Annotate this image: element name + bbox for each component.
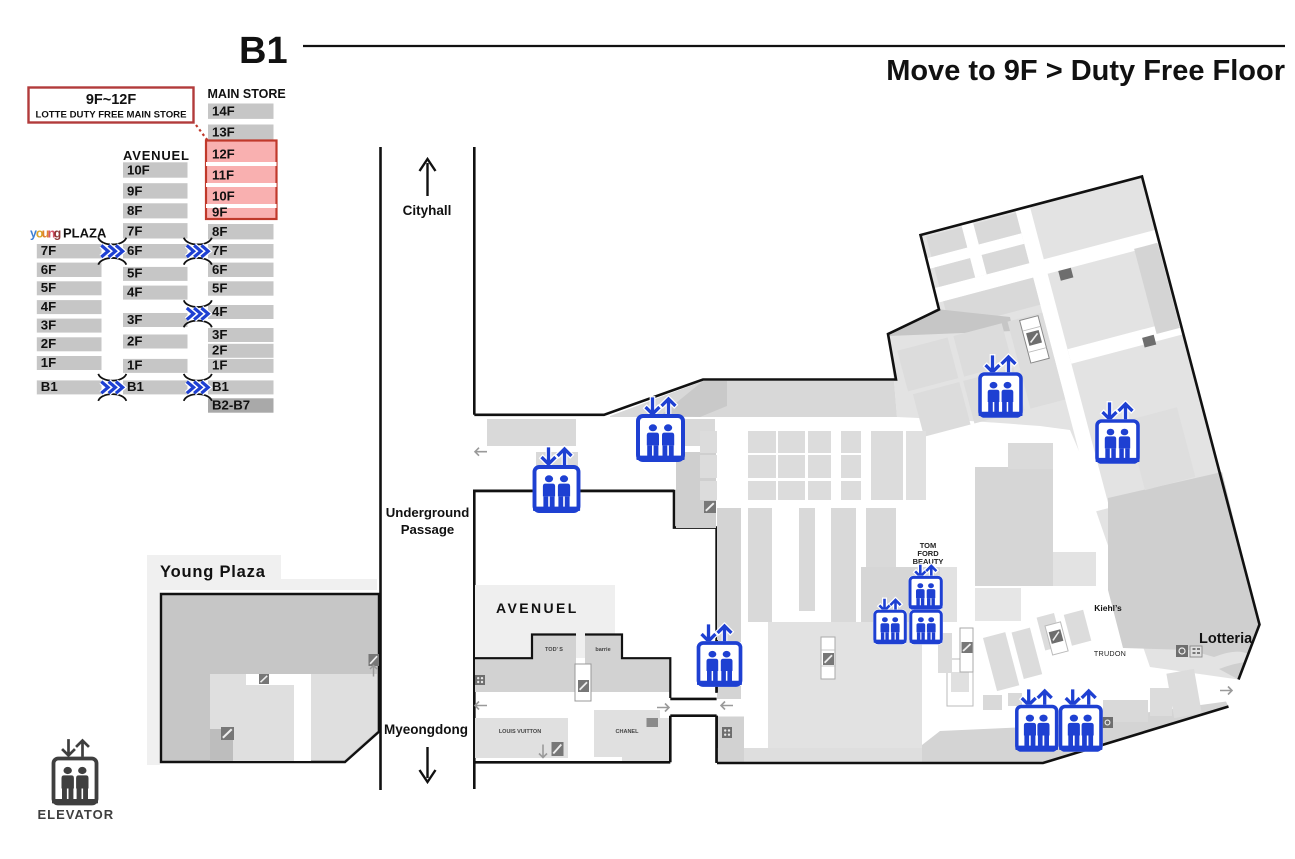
- svg-text:Cityhall: Cityhall: [403, 203, 452, 218]
- svg-text:Young Plaza: Young Plaza: [160, 563, 266, 581]
- svg-text:7F: 7F: [212, 243, 227, 258]
- svg-text:6F: 6F: [212, 262, 227, 277]
- svg-text:B2-B7: B2-B7: [212, 398, 250, 413]
- svg-text:9F~12F: 9F~12F: [86, 92, 137, 108]
- svg-text:10F: 10F: [127, 163, 150, 178]
- svg-text:B1: B1: [239, 30, 288, 72]
- svg-text:6F: 6F: [41, 262, 56, 277]
- svg-text:1F: 1F: [127, 358, 142, 373]
- svg-text:PLAZA: PLAZA: [63, 226, 107, 241]
- svg-text:B1: B1: [41, 379, 58, 394]
- svg-text:BEAUTY: BEAUTY: [913, 557, 944, 566]
- svg-text:9F: 9F: [127, 183, 142, 198]
- svg-text:B1: B1: [212, 379, 229, 394]
- svg-text:3F: 3F: [127, 312, 142, 327]
- svg-text:7F: 7F: [41, 243, 56, 258]
- svg-text:14F: 14F: [212, 104, 235, 119]
- svg-text:8F: 8F: [212, 224, 227, 239]
- svg-text:Myeongdong: Myeongdong: [384, 722, 468, 737]
- svg-text:11F: 11F: [212, 168, 234, 183]
- svg-text:barrie: barrie: [595, 647, 610, 653]
- svg-text:8F: 8F: [127, 203, 142, 218]
- svg-text:TRUDON: TRUDON: [1094, 649, 1126, 658]
- svg-text:Underground: Underground: [386, 505, 470, 520]
- svg-text:2F: 2F: [41, 336, 56, 351]
- svg-text:Move to 9F > Duty Free Floor: Move to 9F > Duty Free Floor: [886, 55, 1285, 87]
- svg-text:LOTTE DUTY FREE MAIN STORE: LOTTE DUTY FREE MAIN STORE: [35, 110, 187, 121]
- svg-text:B1: B1: [127, 379, 144, 394]
- svg-text:CHANEL: CHANEL: [616, 729, 640, 735]
- svg-text:ELEVATOR: ELEVATOR: [38, 807, 115, 822]
- svg-text:9F: 9F: [212, 205, 227, 220]
- svg-text:4F: 4F: [41, 299, 56, 314]
- svg-text:AVENUEL: AVENUEL: [123, 148, 190, 163]
- svg-text:Lotteria: Lotteria: [1199, 631, 1253, 647]
- svg-text:TOD’ S: TOD’ S: [545, 647, 563, 653]
- svg-text:3F: 3F: [41, 317, 56, 332]
- svg-text:LOUIS VUITTON: LOUIS VUITTON: [499, 729, 541, 735]
- svg-text:5F: 5F: [127, 266, 142, 281]
- svg-text:MAIN STORE: MAIN STORE: [208, 87, 286, 101]
- svg-text:7F: 7F: [127, 223, 142, 238]
- svg-text:5F: 5F: [41, 280, 56, 295]
- svg-text:6F: 6F: [127, 243, 142, 258]
- svg-text:1F: 1F: [212, 358, 227, 373]
- svg-text:2F: 2F: [127, 333, 142, 348]
- svg-text:1F: 1F: [41, 355, 56, 370]
- svg-text:AVENUEL: AVENUEL: [496, 600, 579, 616]
- svg-text:Passage: Passage: [401, 522, 455, 537]
- svg-text:4F: 4F: [127, 284, 142, 299]
- svg-text:2F: 2F: [212, 343, 227, 358]
- svg-text:10F: 10F: [212, 189, 235, 204]
- svg-text:12F: 12F: [212, 147, 235, 162]
- svg-text:5F: 5F: [212, 281, 227, 296]
- svg-text:3F: 3F: [212, 327, 227, 342]
- svg-text:4F: 4F: [212, 304, 227, 319]
- svg-text:13F: 13F: [212, 125, 235, 140]
- svg-text:g: g: [54, 227, 62, 241]
- svg-text:Kiehl’s: Kiehl’s: [1094, 603, 1122, 613]
